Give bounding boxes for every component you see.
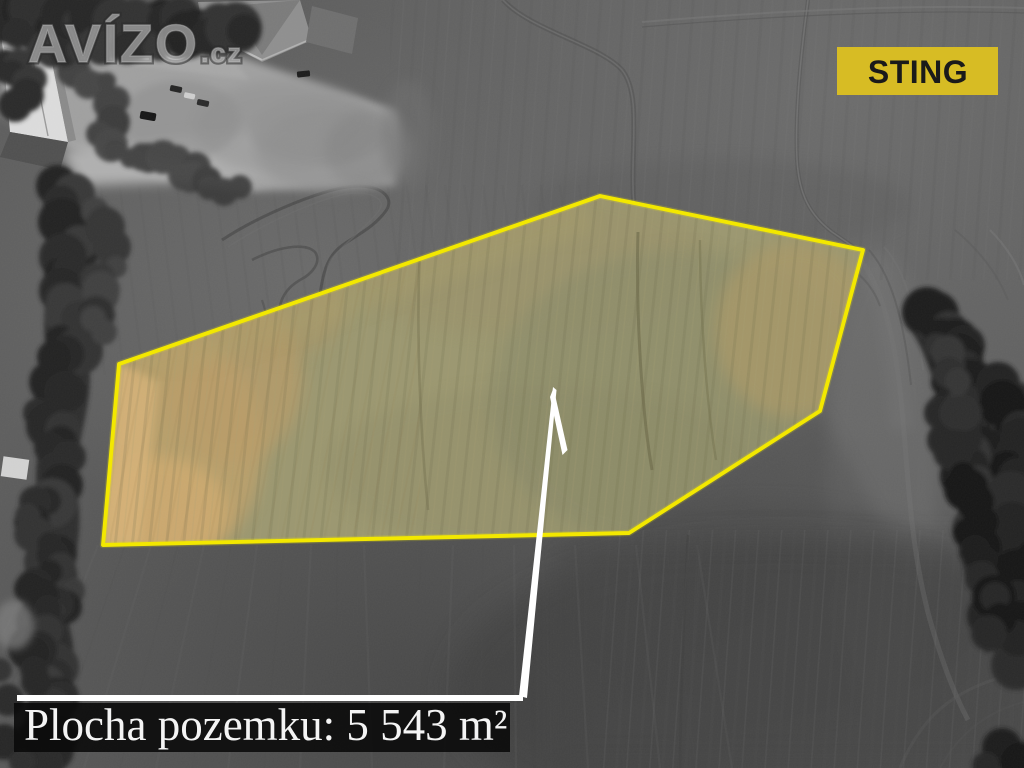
- svg-text:STING: STING: [868, 54, 968, 90]
- svg-text:Plocha pozemku: 5 543 m²: Plocha pozemku: 5 543 m²: [24, 700, 507, 750]
